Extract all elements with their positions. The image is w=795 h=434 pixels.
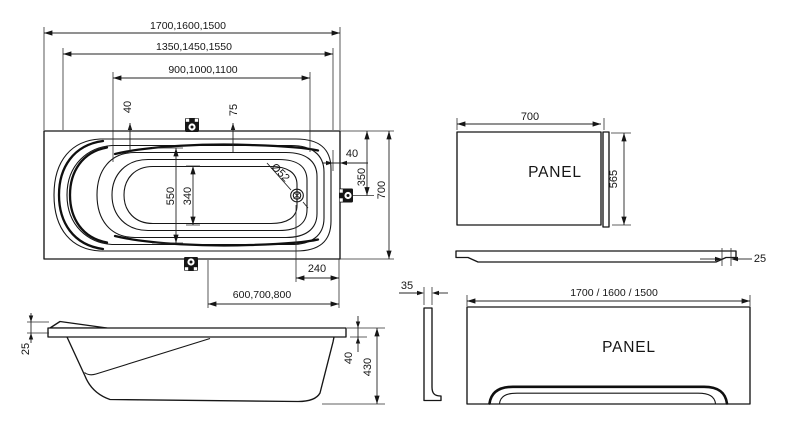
dim-front-panel-thickness: 35: [399, 280, 448, 305]
dim-overall-height: 430: [322, 328, 385, 404]
front-panel-side-profile: [424, 308, 441, 401]
basin-length-label: 900,1000,1100: [168, 64, 237, 76]
dim-front-panel-lengths: 1700 / 1600 / 1500: [467, 287, 750, 306]
side-panel-label: PANEL: [528, 164, 582, 181]
drawing-canvas: Ø52 1700,1600,1500 1350,1450,1550 900,10…: [0, 0, 795, 434]
front-panel-view: 35 1700 / 1600 / 1500 PANEL: [399, 280, 750, 404]
side-panel-height-label: 565: [608, 170, 620, 188]
dim-rim-thickness: 25: [20, 313, 49, 355]
tub-top-view: Ø52 1700,1600,1500 1350,1450,1550 900,10…: [44, 20, 394, 308]
front-panel-lengths-label: 1700 / 1600 / 1500: [570, 287, 658, 299]
edge-offset-label: 40: [122, 101, 134, 113]
mount-bracket-right: [339, 189, 353, 203]
dim-rim-length: 1350,1450,1550: [63, 41, 333, 130]
panel-plan-profile: [456, 251, 736, 262]
rim-bar: [48, 328, 346, 337]
tub-side-view: 25 40 430: [20, 313, 385, 404]
rim-drop-label: 40: [343, 352, 355, 364]
mount-bracket-top: [185, 118, 199, 132]
side-panel-width-label: 700: [521, 111, 539, 123]
floor-from-end-label: 600,700,800: [233, 289, 292, 301]
grip-offset-label: 75: [228, 104, 240, 116]
overall-length-label: 1700,1600,1500: [150, 20, 226, 32]
drain-from-edge-label: 350: [356, 168, 368, 186]
bathtub-technical-drawing: Ø52 1700,1600,1500 1350,1450,1550 900,10…: [0, 0, 795, 434]
floor-width-label: 340: [182, 187, 194, 205]
side-offset-label: 40: [346, 148, 358, 160]
front-panel-label: PANEL: [602, 339, 656, 356]
inner-width-label: 550: [165, 187, 177, 205]
mount-bracket-bottom: [184, 257, 198, 271]
dim-rim-drop: 40: [343, 316, 385, 364]
panel-edge-thickness-label: 25: [754, 253, 766, 265]
rim-thickness-label: 25: [20, 343, 32, 355]
drain-from-end-label: 240: [308, 263, 326, 275]
overall-height-label: 430: [362, 358, 374, 376]
tub-body-profile: [67, 337, 334, 402]
rim-wedge: [50, 322, 107, 329]
dim-side-panel-height: 565: [608, 133, 631, 225]
tub-interior-slope: [85, 339, 211, 375]
rim-length-label: 1350,1450,1550: [156, 41, 232, 53]
overall-width-label: 700: [376, 181, 388, 199]
side-panel-view: 700 PANEL 565: [457, 111, 631, 227]
front-panel-thickness-label: 35: [401, 280, 413, 292]
dim-side-panel-width: 700: [457, 111, 604, 130]
panel-plan-view: 25: [456, 248, 766, 266]
